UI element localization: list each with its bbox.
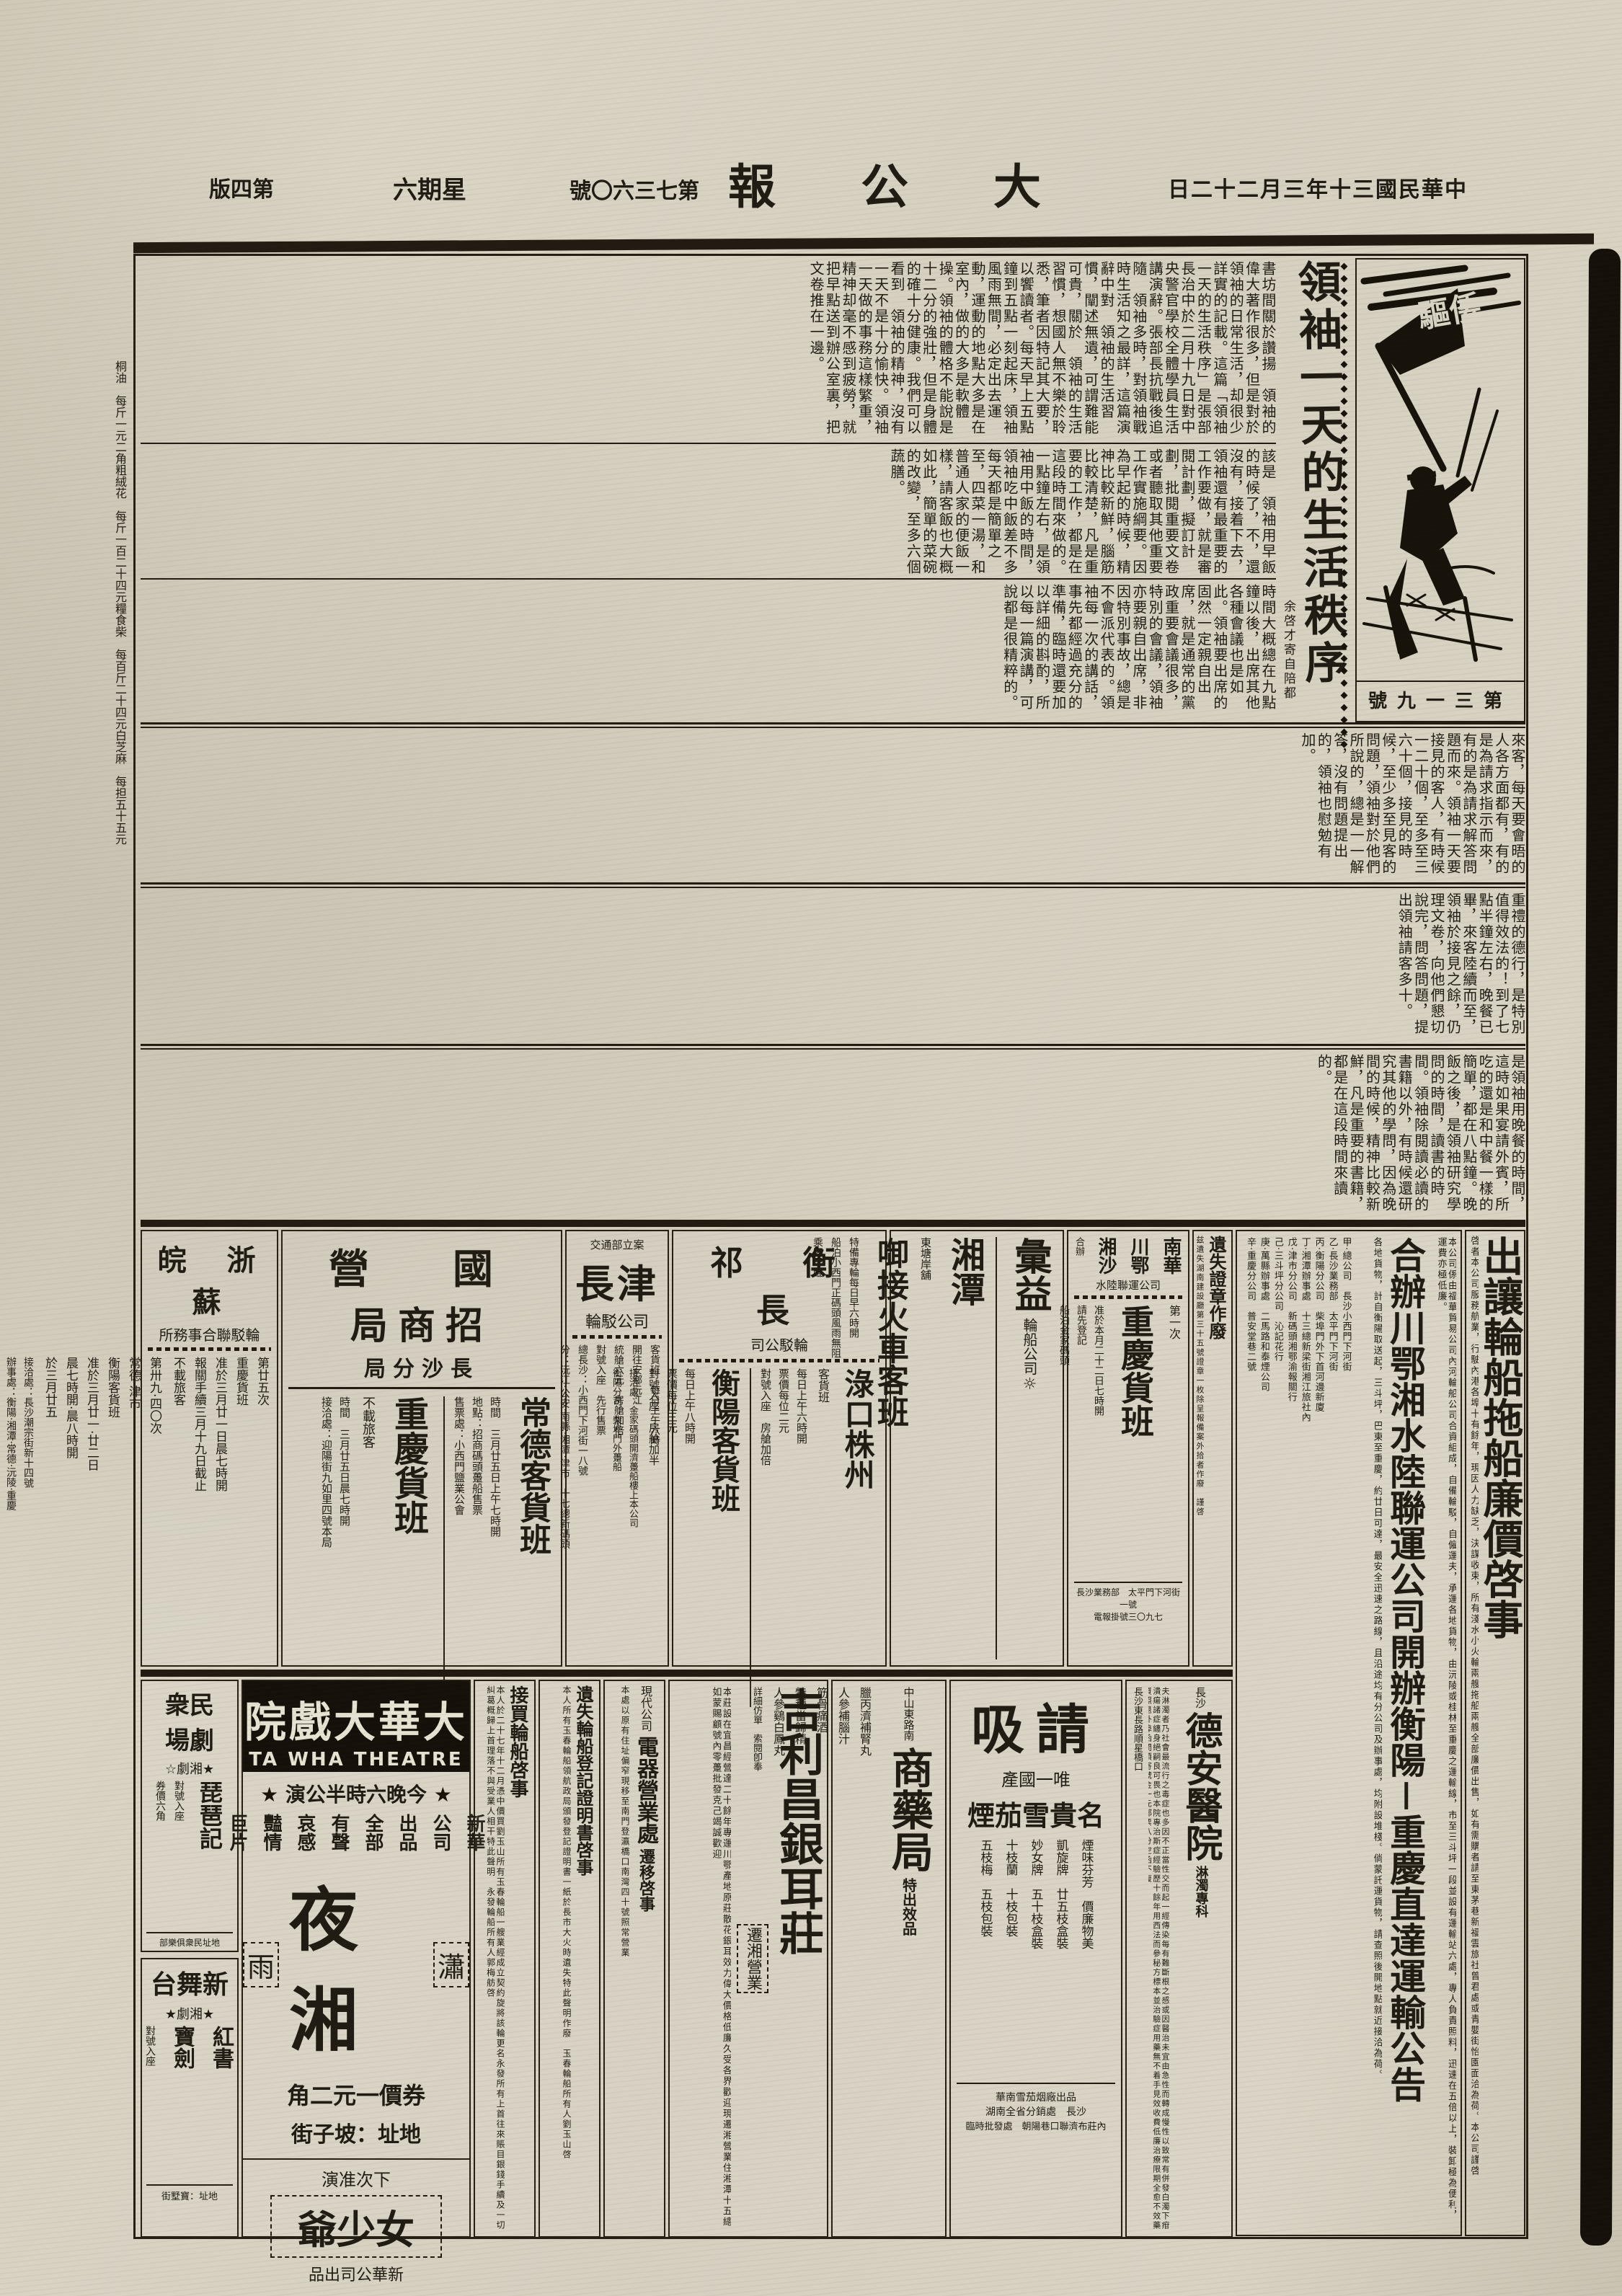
text-column: 報關手續三月十九日截止: [190, 1357, 208, 1703]
text-column: 白芝麻 每担五十五元: [85, 730, 128, 845]
text-column: 十枝蘭 十枝包裝: [1002, 1839, 1020, 2077]
text-column: 第卅九·四〇次: [146, 1357, 164, 1703]
bottom-band-rule: [141, 1670, 1233, 1677]
text-column: 五枝梅 五枝包裝: [977, 1839, 995, 2077]
office-address: 長沙業務部 太平門下河街一號: [1074, 1586, 1182, 1610]
joint-label: 合辦: [1072, 1237, 1086, 1275]
ad-dahua-theatre: 院戲大華大 TA WHA THEATRE ★ 演公半時六晚今 ★ 新華公司出品全…: [241, 1680, 471, 2238]
changde-run-title: 常德客貨班: [509, 1396, 555, 1692]
price-list: 桐油 每斤一元二角粗絨花 每斤一百二十四元糧食柴 每百斤二十四元白芝麻 每担五十…: [85, 360, 128, 2163]
notice-body: 本處以原有住址偏窄現移至南門登瀛橋口南灣四十號照常營業: [620, 1685, 629, 2232]
text-column: 晨七時開·晨八時開: [62, 1357, 80, 1703]
text-column: 豔情: [258, 1814, 285, 1851]
ad-subtitle: 輪船公司: [1019, 1318, 1040, 1375]
divider: [572, 1335, 662, 1339]
date-line: 日二十二月三年十三國民華中: [1168, 172, 1468, 203]
pharmacy-title: 商藥局: [879, 1747, 939, 1872]
text-column: 柴 每百斤二十四元: [85, 626, 128, 730]
product-list: 臘丙濟補腎丸人參補腦汁筋骨痛酒特種當歸精人參鷄白鳳丸: [769, 1687, 873, 2230]
text-column: 每日上午六時開: [794, 1368, 810, 1707]
factory-line: 華南雪茄烟廠出品: [957, 2090, 1115, 2104]
text-column: 乘客早臨: [810, 1237, 825, 1659]
first-voyage-label: 第一次: [1165, 1305, 1182, 1579]
film-title-main: 夜湘: [289, 1864, 423, 2065]
text-column: 辦事處：衡陽·湘潭·常德·沅陵·重慶: [4, 1357, 18, 1703]
text-column: 衡陽分司：柴埠門外躉船: [609, 1368, 623, 1707]
text-column: 甲·總公司 長沙小西門下河街: [1340, 1237, 1351, 2229]
text-column: 紅書: [205, 2026, 236, 2184]
text-column: 每日上午八時開: [683, 1368, 698, 1707]
text-column: 對號入座: [172, 1781, 186, 1932]
text-column: 准於三月廿一日晨七時開: [211, 1357, 229, 1703]
margin-price-strip: 桐油 每斤一元二角粗絨花 每斤一百二十四元糧食柴 每百斤二十四元白芝麻 每担五十…: [85, 360, 128, 2163]
play-title: 琵琶記: [193, 1781, 226, 1932]
text-column: 川鄂: [1125, 1237, 1152, 1275]
text-column: 地點：招商碼頭躉船售票: [470, 1396, 485, 1692]
ad-electric-office-move: 現代公司 電器營業處 遷移啓事 本處以原有住址偏窄現移至南門登瀛橋口南灣四十號照…: [603, 1680, 665, 2238]
notice-body: 本人於二十七年十二月憑中價買劉玉山所有玉春輪船一艘業經成立契約旋將該輪更名永發所…: [485, 1685, 505, 2232]
film-tags: 新華公司出品全部有聲哀感豔情巨片: [224, 1814, 488, 1851]
ad-title-row3: 局分沙長: [288, 1351, 555, 1383]
text-column: 售票處：小西門鹽業公會: [452, 1396, 467, 1692]
band-rule: [141, 1044, 1525, 1050]
text-column: 筋骨痛酒: [812, 1687, 830, 2230]
xiangtan-title: 湘潭: [939, 1237, 990, 1659]
notice-body: 各地貨物，計自衡陽取送起，三斗坪，巴東至重慶，約廿日可達，最安全迅速之路線，且沿…: [1355, 1237, 1382, 2229]
theatre-address: 街子坡：址地: [243, 2117, 469, 2148]
text-column: 不載旅客: [169, 1357, 187, 1703]
text-column: 衡陽客貨班: [104, 1357, 122, 1703]
ad-subtitle: 水陸聯運公司: [1074, 1277, 1182, 1293]
text-column: 凱旋牌 廿五枝盒裝: [1052, 1839, 1071, 2077]
ad-suzhewan-shipping: 皖 浙 蘇 所務事合聯駁輪 第廿五次重慶貨班准於三月廿一日晨七時開報關手續三月十…: [141, 1230, 278, 1667]
hospital-body: 夫淋濁者乃社會最流行之毒症也多因不正當性交而起一經傳染每有難斷根之感或因醫治未宜…: [1148, 1687, 1169, 2230]
film-title-char-left: 雨: [243, 1942, 279, 1987]
theatre-banner: 院戲大華大: [243, 1688, 469, 1749]
notice-body: 本人所有玉春輪船領航政局頒發登記證明書一紙於長市大火時遺失特此聲明作廢 玉春輪船…: [562, 1685, 571, 2232]
hengyang-run: 第卅九·四〇次常德·津市衡陽客貨班准於三月廿一·廿二日晨七時開·晨八時開於三月廿…: [41, 1357, 164, 1703]
ad-huiyi-steamship: 彙益 輪船公司 ☼ 湘潭 東塘岸舖 啣接火車客班 特備專輪每日早六時開船泊小西門…: [890, 1230, 1064, 1667]
play-titles: 紅書寶劍: [166, 2026, 236, 2184]
text-column: 戊·津市分公司 新碼頭湘鄂渝報關行: [1285, 1237, 1296, 2229]
text-column: 時間 三月廿五日晨七時開: [337, 1396, 353, 1692]
chongqing-cargo-title: 重慶貨班: [1112, 1305, 1159, 1579]
hospital-address: 長沙東長路順星橋口: [1130, 1687, 1144, 2230]
text-column: 湘沙: [1093, 1237, 1120, 1275]
ad-title: 所務事合聯駁輪: [148, 1324, 271, 1344]
no-passengers-note: 不載旅客: [358, 1396, 377, 1692]
lead-article-row3: 時間大概總在九點鐘以後，出席其他各種會議也是如此。領袖要出席的固然一定親自出席，…: [141, 584, 1276, 719]
ad-headline: 出讓輪船拖船廉價啓事: [1479, 1236, 1521, 2230]
text-column: 特備專輪每日早六時開: [846, 1237, 861, 1659]
text-column: 煙味芬芳 價廉物美: [1078, 1839, 1096, 2077]
text-column: 接洽處：長沙潮宗街新十四號: [21, 1357, 35, 1703]
company-name: 現代公司: [637, 1685, 654, 1732]
sun-ornament: ☼: [1023, 1375, 1037, 1393]
products-tag: 特出效品: [899, 1878, 920, 1936]
lead-headline: 領袖一天的生活秩序: [1294, 260, 1344, 688]
text-column: 分：沅江·公安·南縣·湘潭·津市 十七總新碼頭: [557, 1344, 572, 1647]
ad-nanhua-joint-transport: 南華川鄂湘沙 合辦 水陸聯運公司 第一次 重慶貨班 准於本月二十二日七時開請先登…: [1067, 1230, 1189, 1667]
ad-cigar-promo: 吸請 產國一唯 煙茄雪貴名 煙味芬芳 價廉物美凱旋牌 廿五枝盒裝妙女牌 五十枝盒…: [949, 1680, 1122, 2238]
notice-title: 遺失證章作廢: [1204, 1236, 1229, 1661]
showtime-line: ★ 演公半時六晚今 ★: [243, 1779, 469, 1808]
ticket-price: 角二元一價券: [243, 2078, 469, 2111]
cartoon-flag-text: 驅倭: [1415, 288, 1485, 336]
run-details: 每日上午六時開票價每位二元對號入座 房艙加倍: [758, 1368, 810, 1707]
catalog-note: 詳細仿單 索閱卽奉: [750, 1687, 763, 2230]
showtime-text: 演公半時六晚今: [285, 1783, 427, 1807]
text-column: 妙女牌 五十枝盒裝: [1027, 1839, 1045, 2077]
ad-lost-ship-registration: 遺失輪船登記證明書啓事 本人所有玉春輪船領航政局頒發登記證明書一紙於長市大火時遺…: [539, 1680, 601, 2238]
text-column: 第廿五次: [253, 1357, 271, 1703]
text-column: 請先登記: [1074, 1305, 1089, 1579]
text-column: 有聲: [326, 1814, 353, 1851]
changde-run-details: 時間 三月廿五日上午七時開地點：招商碼頭躉船售票售票處：小西門鹽業公會: [452, 1396, 503, 1692]
film-title-char-right: 瀟: [433, 1942, 469, 1987]
text-column: 時間 三月廿五日上午七時開: [488, 1396, 503, 1692]
train-connection-title: 啣接火車客班: [867, 1237, 913, 1659]
row-rule: [141, 578, 1276, 580]
text-column: 船泊小西門正碼頭風雨無阻: [828, 1237, 843, 1659]
text-column: 接洽處：金家碼頭開濟躉船樓上本公司: [626, 1368, 639, 1707]
text-column: 桐油 每斤一元二角: [85, 360, 128, 464]
notice-headline: 合辦川鄂湘水陸聯運公司開辦衡陽－重慶直達運輸公告: [1386, 1237, 1424, 2229]
genre-tag: ☆劇湘★: [146, 1759, 233, 1778]
text-column: 總長沙：小西門下河街一八號: [575, 1344, 590, 1647]
move-notice-label: 遷移啓事: [634, 1848, 657, 1912]
cartoon-illustration: 驅倭: [1357, 260, 1523, 678]
city-label: 長沙: [1193, 1687, 1208, 1708]
cigar-title: 煙茄雪貴名: [957, 1794, 1115, 1833]
ad-approval-line: 交通部立案: [572, 1237, 662, 1252]
theatre-banner-english: TA WHA THEATRE: [243, 1749, 469, 1770]
divider: [1074, 1295, 1182, 1299]
lead-article-row1: 書坊間關於讚揚 領袖的偉大著作很多，但是對於 領袖的日常生活，却很少詳實的記載。…: [141, 261, 1276, 440]
band-rule: [141, 882, 1525, 888]
band-rule: [141, 722, 1525, 728]
text-column: 臘丙濟補腎丸: [856, 1687, 873, 2230]
contact-info: 接洽處：金家碼頭開濟躉船樓上本公司衡陽分司：柴埠門外躉船: [609, 1368, 639, 1707]
domestic-tagline: 產國一唯: [957, 1765, 1115, 1791]
hengyang-run-title: 衡陽客貨班: [702, 1368, 744, 1707]
text-column: 人參鷄白鳳丸: [769, 1687, 786, 2230]
office-title: 電器營業處: [629, 1736, 661, 1844]
divider: [957, 2083, 1115, 2084]
ad-title: 長津: [572, 1252, 662, 1309]
notice-title: 接買輪船啓事: [505, 1685, 531, 2232]
pharmacy-address: 中山東路南: [902, 1687, 917, 1741]
text-column: 對號入座 先行售票: [593, 1344, 608, 1647]
row-rule: [141, 443, 1276, 444]
text-column: 己·三斗坪分公司 沁記花行: [1272, 1237, 1282, 2229]
star-icon: ★: [434, 1783, 452, 1807]
text-column: 哀感: [292, 1814, 319, 1851]
scan-gutter-bar: [1580, 249, 1621, 2246]
seating-note: 對號入座: [143, 2026, 157, 2184]
next-film-title: 爺少女: [270, 2195, 442, 2258]
distribution-line: 湖南全省分銷處 長沙: [957, 2104, 1115, 2119]
text-column: 票價每位三元: [665, 1368, 680, 1707]
genre-tag: ★劇湘★: [146, 2004, 233, 2023]
ad-region: 皖 浙 蘇: [148, 1237, 271, 1321]
ad-new-stage-theater: 台舞新 ★劇湘★ 紅書寶劍 對號入座 街墅寶：址地: [141, 1958, 239, 2238]
ad-title-columns: 南華川鄂湘沙: [1093, 1237, 1184, 1275]
run-details: 每日上午八時開票價每位三元對號入座 房艙加半: [647, 1368, 698, 1707]
brand-list: 煙味芬芳 價廉物美凱旋牌 廿五枝盒裝妙女牌 五十枝盒裝十枝蘭 十枝包裝五枝梅 五…: [977, 1839, 1096, 2077]
wharf-note: 東塘岸舖: [918, 1237, 934, 1659]
ads-top-rule: [141, 1220, 1525, 1227]
text-column: 對號入座 房艙加半: [647, 1368, 662, 1707]
ad-tugboat-sale: 出讓輪船拖船廉價啓事 啓者本公司服務航業，行駛內港各埠十有餘年，現因人力缺乏，決…: [1465, 1230, 1525, 2236]
next-show-label: 演准次下: [249, 2166, 464, 2191]
theater-name-row2: 場劇: [146, 1721, 233, 1756]
text-column: 辛·重慶分公司 普安堂巷二號: [1244, 1237, 1255, 2229]
text-column: 准於本月二十二日七時開: [1091, 1305, 1106, 1579]
divider: [288, 1387, 555, 1389]
text-column: 全部: [360, 1814, 386, 1851]
chongqing-cargo-run: 第廿五次重慶貨班准於三月廿一日晨七時開報關手續三月十九日截止不載旅客: [169, 1357, 271, 1703]
article-band-2: 來客，每天要會晤的人各方面都有，有的是為請求指示而來，有的是為請求解答問題而來。…: [141, 732, 1525, 878]
text-column: 特種當歸精: [791, 1687, 808, 2230]
theater-address: 部樂俱衆民址地: [146, 1932, 233, 1949]
lead-byline: 余啓才寄自陪都: [1280, 600, 1298, 701]
weekday-label: 六期星: [393, 170, 466, 205]
wholesale-line: 臨時批發處 朝陽巷口聯濟布莊內: [957, 2119, 1115, 2132]
text-column: 乙·長沙業務部 太平門下河街: [1326, 1237, 1337, 2229]
text-column: 丙·衡陽分公司 柴埠門外下首河邊新廈: [1313, 1237, 1324, 2229]
ad-title-row1: 營 國: [288, 1237, 555, 1295]
text-column: 丁·湘潭辦事處 十三總新梁街湘江旅社內: [1299, 1237, 1310, 2229]
notice-title: 遺失輪船登記證明書啓事: [571, 1685, 596, 2232]
cartoon-box: 驅倭 號九一三第: [1355, 258, 1525, 722]
article-band-3: 重禮的德行，是特別值得效法的！到了七點半鐘左右，晚餐已畢，來客陸續而至，領袖於接…: [141, 892, 1525, 1040]
ad-merchants-bureau: 營 國 局商招 局分沙長 常德客貨班 時間 三月廿五日上午七時開地點：招商碼頭躉…: [281, 1230, 562, 1667]
ad-transport-notice: 本公司係由福華貿易公司內河輪船公司合資組成，自備輪駁，自僱運夫，承運各地貨物，由…: [1236, 1230, 1462, 2236]
text-column: 巨片: [224, 1814, 251, 1851]
ad-details: 准於本月二十二日七時開請先登記船泊金家碼頭: [1057, 1305, 1106, 1579]
smoke-headline: 吸請: [957, 1687, 1115, 1764]
notice-body: 兹遺失湖南建設廳第三十五號證章一枚除呈報備案外拾者作廢 謹啓: [1196, 1236, 1204, 1661]
text-column: 糧食: [85, 603, 128, 626]
notice-intro: 本公司係由福華貿易公司內河輪船公司合資組成，自備輪駁，自僱運夫，承運各地貨物，由…: [1428, 1237, 1456, 2229]
text-column: 接洽處：迎陽街九如里四號本局: [319, 1396, 334, 1692]
text-column: 寶劍: [166, 2026, 198, 2184]
diamond-divider: ◆◆◆◆◆◆◆◆◆◆◆◆◆◆◆◆◆◆◆◆◆◆◆◆◆◆◆◆◆◆◆◆◆◆◆◆◆◆◆◆: [1339, 261, 1349, 719]
ad-pharmacy: 中山東路南 商藥局 特出效品 臘丙濟補腎丸人參補腦汁筋骨痛酒特種當歸精人參鷄白鳳…: [831, 1680, 947, 2238]
newspaper-page: 版四第 六期星 號〇六三七第 報 公 大 日二十二月三年十三國民華中 桐油 每斤…: [0, 0, 1622, 2296]
text-column: 准於三月廿一·廿二日: [83, 1357, 101, 1703]
ad-title-row2: 局商招: [288, 1295, 555, 1349]
lead-headline-block: 領袖一天的生活秩序 余啓才寄自陪都: [1279, 260, 1341, 722]
text-column: 於三月廿五: [41, 1357, 59, 1703]
seating-price: 對號入座券價六角: [153, 1781, 186, 1932]
theater-name: 台舞新: [146, 1964, 233, 2001]
newspaper-title: 報 公 大: [728, 149, 1060, 218]
theater-name-row1: 衆民: [146, 1685, 233, 1721]
ad-details: 特備專輪每日早六時開船泊小西門正碼頭風雨無阻乘客早臨: [810, 1237, 861, 1659]
ad-ship-purchase-notice: 接買輪船啓事 本人於二十七年十二月憑中價買劉玉山所有玉春輪船一艘業經成立契約旋將…: [474, 1680, 536, 2238]
hospital-title: 德安醫院: [1174, 1711, 1228, 1861]
text-column: 粗絨花 每斤一百二十四元: [85, 464, 128, 603]
edition-label: 版四第: [209, 172, 274, 203]
ad-lost-badge-notice: 遺失證章作廢 兹遺失湖南建設廳第三十五號證章一枚除呈報備案外拾者作廢 謹啓: [1192, 1230, 1233, 1667]
ad-body: 本莊設在宜昌經營達二十餘年專運川鄂產地原莊散花銀耳效力偉大價格低廉久受各界歡迎現…: [688, 1687, 731, 2230]
cartoon-caption: 號九一三第: [1357, 681, 1524, 713]
lead-article-row2: 該是 領袖用早飯的時候了，不，還沒有，接着下去，領袖還有最重要的工作要做，就是審…: [141, 448, 1276, 575]
ad-dean-hospital: 長沙 德安醫院 淋濁專科 夫淋濁者乃社會最流行之毒症也多因不正當性交而起一經傳染…: [1125, 1680, 1233, 2238]
telegraph-number: 電報掛號三〇九七: [1074, 1610, 1182, 1623]
ad-title: 彙益: [1003, 1237, 1057, 1312]
text-column: 船泊金家碼頭: [1057, 1305, 1071, 1579]
text-column: 南華: [1158, 1237, 1184, 1275]
text-column: 人參補腦汁: [834, 1687, 851, 2230]
text-column: 重慶貨班: [232, 1357, 250, 1703]
article-band-4: 是領袖用晚餐的時間，這時如果宴請外賓，所吃的還是和中餐一樣的簡單，都在八點鐘。晚…: [141, 1054, 1525, 1215]
divider: [1074, 1582, 1182, 1583]
next-film-studio: 品出司公華新: [249, 2262, 464, 2285]
issue-number: 號〇六三七第: [570, 173, 699, 205]
masthead-rule: [133, 234, 1594, 253]
specialty-tag: 淋濁專科: [1192, 1866, 1210, 1918]
divider: [148, 1347, 271, 1351]
text-column: 庚·萬縣辦事處 二馬路和泰煙公司: [1258, 1237, 1269, 2229]
text-column: 票價每位二元: [776, 1368, 792, 1707]
text-column: 出品: [394, 1814, 420, 1851]
star-icon: ★: [260, 1783, 278, 1807]
notice-offices: 甲·總公司 長沙小西門下河街乙·長沙業務部 太平門下河街丙·衡陽分公司 柴埠門外…: [1241, 1237, 1351, 2229]
text-column: 常德·津市: [125, 1357, 143, 1703]
contact-info: 接洽處：長沙潮宗街新十四號辦事處：衡陽·湘潭·常德·沅陵·重慶: [4, 1357, 35, 1703]
text-column: 公司: [427, 1814, 454, 1851]
text-column: 對號入座 房艙加倍: [758, 1368, 774, 1707]
chongqing-run-details: 時間 三月廿五日晨七時開接洽處：迎陽街九如里四號本局: [319, 1396, 353, 1692]
chongqing-run-title: 重慶貨班: [383, 1396, 433, 1692]
text-column: 券價六角: [153, 1781, 167, 1932]
ad-subtitle: 輪駁公司: [572, 1309, 662, 1332]
theater-address: 街墅寶：址地: [146, 2184, 233, 2202]
